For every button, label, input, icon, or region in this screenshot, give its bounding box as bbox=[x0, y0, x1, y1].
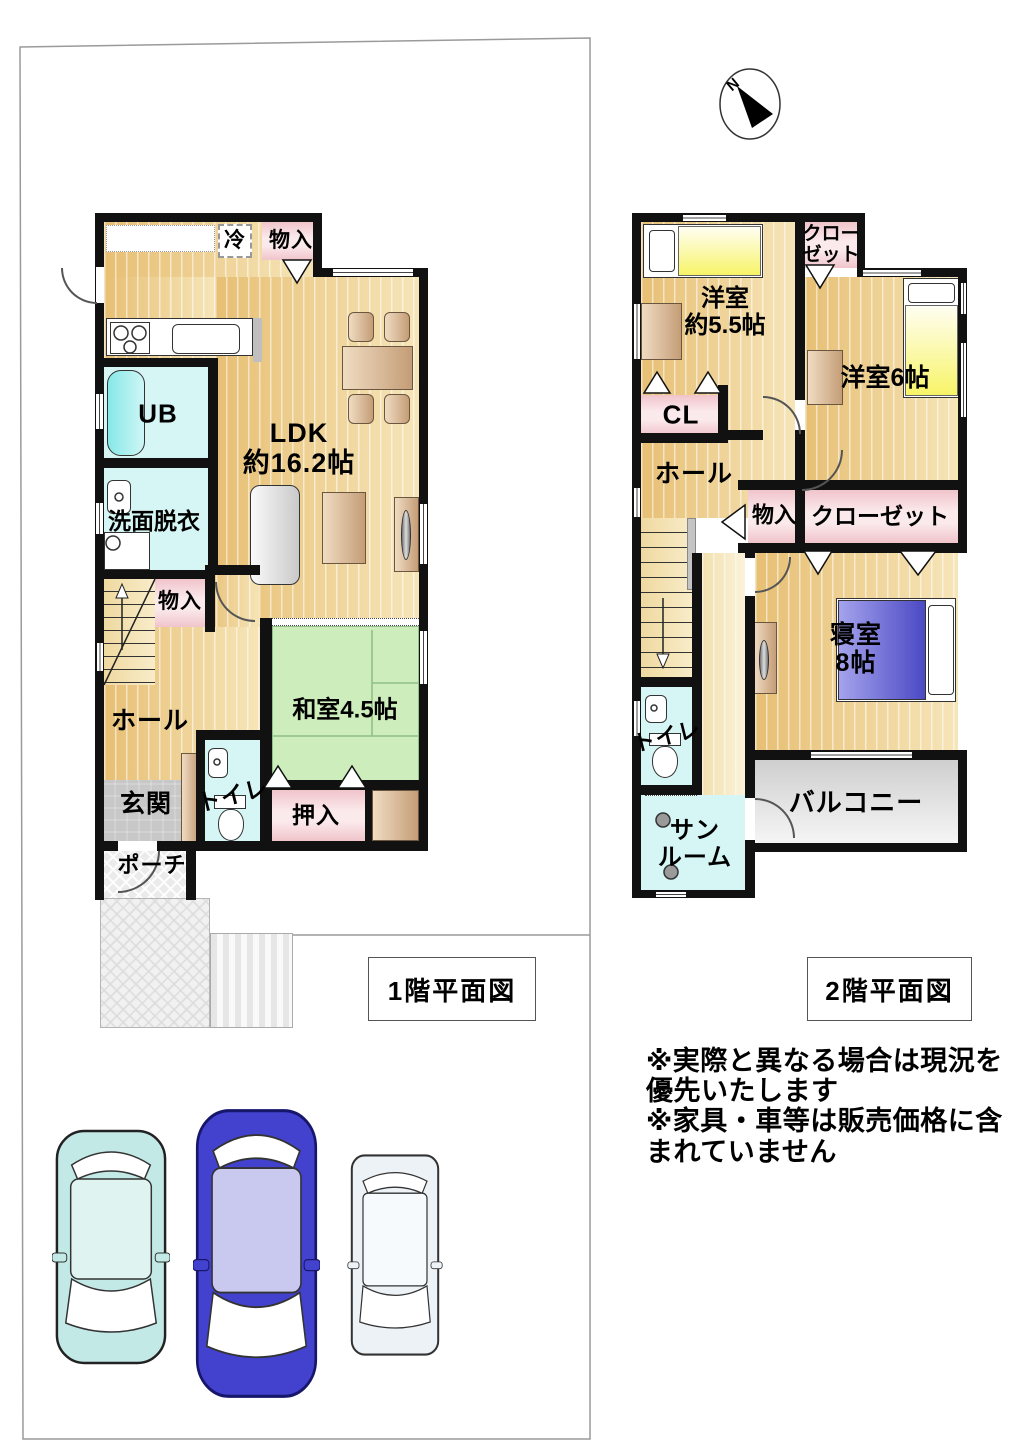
wall bbox=[208, 358, 218, 570]
wall bbox=[95, 213, 104, 900]
window bbox=[419, 630, 428, 685]
dining-chair bbox=[348, 312, 374, 342]
room-label-bedroom: 寝室 8帖 bbox=[830, 621, 882, 677]
floor2-title-box: 2階平面図 bbox=[807, 957, 972, 1021]
wall bbox=[365, 790, 372, 841]
room-label-closet-wide: クローゼット bbox=[811, 504, 949, 530]
wall bbox=[205, 565, 215, 632]
window bbox=[682, 214, 727, 222]
toilet-basin-1f bbox=[208, 748, 228, 778]
corridor-2f-floor bbox=[702, 553, 745, 795]
tv-screen bbox=[401, 510, 411, 560]
dining-chair bbox=[384, 312, 410, 342]
room-label-unit-bath: UB bbox=[138, 399, 178, 428]
window bbox=[95, 393, 104, 430]
wall bbox=[632, 890, 755, 898]
floor1-title-box: 1階平面図 bbox=[368, 957, 536, 1021]
wall bbox=[692, 553, 702, 795]
toilet-basin-2f bbox=[645, 695, 667, 723]
desk-55 bbox=[641, 303, 682, 360]
room-label-fridge: 冷 bbox=[224, 229, 246, 253]
room-label-storage-2f: 物入 bbox=[752, 504, 796, 529]
room-label-balcony: バルコニー bbox=[789, 788, 923, 817]
wall bbox=[95, 570, 215, 579]
dresser-mirror bbox=[759, 640, 769, 680]
window bbox=[960, 282, 967, 315]
wall bbox=[958, 756, 967, 852]
room-label-ldk: LDK 約16.2帖 bbox=[243, 418, 356, 478]
wall bbox=[95, 213, 322, 222]
window bbox=[810, 751, 913, 759]
wall bbox=[95, 841, 104, 900]
wall bbox=[632, 433, 728, 443]
kitchen-cabinet-dotted bbox=[106, 225, 215, 252]
door-arc bbox=[763, 396, 801, 434]
room-label-washroom: 洗面脱衣 bbox=[108, 509, 200, 535]
wall bbox=[95, 358, 218, 367]
room-label-hall-2f: ホール bbox=[655, 460, 733, 488]
door-opening bbox=[745, 798, 755, 840]
car-top-view-blue bbox=[193, 1107, 320, 1400]
compass: N bbox=[714, 64, 786, 142]
dining-table bbox=[342, 346, 413, 390]
room-label-porch: ポーチ bbox=[117, 854, 186, 879]
door-opening bbox=[96, 267, 104, 303]
room-label-closet-top: クロー ゼット bbox=[802, 224, 859, 267]
dining-chair bbox=[384, 394, 410, 424]
window bbox=[960, 342, 967, 418]
toilet-bowl-1f bbox=[218, 809, 244, 841]
tokonoma-cabinet bbox=[372, 790, 419, 841]
floor-plan-sheet: N bbox=[0, 0, 1029, 1456]
room-label-japanese-room: 和室4.5帖 bbox=[292, 698, 397, 725]
bed-blue-pillow bbox=[928, 605, 954, 695]
wall bbox=[632, 213, 865, 222]
wall bbox=[632, 785, 702, 795]
wall bbox=[738, 543, 967, 553]
stove bbox=[110, 322, 150, 354]
stairs-1f bbox=[104, 579, 155, 685]
cabinet-6 bbox=[807, 350, 843, 405]
wall bbox=[795, 430, 805, 553]
room-label-entrance: 玄関 bbox=[120, 790, 172, 818]
wall bbox=[745, 843, 967, 852]
door-arc bbox=[61, 268, 97, 304]
kitchen-counter-edge bbox=[253, 318, 262, 362]
window bbox=[419, 503, 428, 565]
wall bbox=[718, 385, 728, 440]
wall bbox=[738, 480, 967, 490]
wall bbox=[186, 841, 196, 900]
washer-pan bbox=[104, 532, 150, 570]
wall bbox=[632, 677, 701, 687]
approach-walkway bbox=[100, 898, 210, 1028]
room-label-western-room-6: 洋室6帖 bbox=[841, 364, 930, 392]
room-label-cl: CL bbox=[663, 400, 700, 429]
window bbox=[655, 891, 687, 898]
window bbox=[862, 269, 922, 277]
disclaimer-text: ※実際と異なる場合は現況を 優先いたします ※家具・車等は販売価格に含 まれてい… bbox=[646, 1046, 1029, 1167]
room-label-storage-1f-top: 物入 bbox=[269, 229, 313, 253]
room-label-sunroom: サン ルーム bbox=[658, 818, 732, 872]
room-label-oshiire: 押入 bbox=[292, 803, 340, 829]
entrance-steps bbox=[210, 933, 293, 1028]
bed-6-pillow bbox=[908, 283, 955, 303]
wall bbox=[260, 780, 428, 790]
window bbox=[95, 502, 104, 535]
kitchen-sink bbox=[172, 324, 240, 354]
window bbox=[633, 303, 641, 360]
tatami-sill bbox=[272, 618, 419, 626]
window bbox=[633, 487, 641, 518]
window bbox=[96, 642, 104, 672]
wall bbox=[186, 841, 428, 851]
wall bbox=[95, 458, 218, 468]
door-opening bbox=[745, 558, 755, 596]
coffee-table bbox=[322, 492, 366, 564]
room-label-hall-1f: ホール bbox=[111, 707, 189, 735]
room-label-storage-1f-mid: 物入 bbox=[158, 590, 202, 614]
car-top-view-white bbox=[347, 1152, 443, 1358]
door-opening bbox=[118, 841, 157, 851]
wall bbox=[260, 618, 272, 737]
bed-55-pillow bbox=[649, 230, 675, 272]
room-label-western-room-55: 洋室 約5.5帖 bbox=[684, 286, 765, 340]
car-top-view-cyan bbox=[52, 1127, 170, 1367]
window bbox=[332, 268, 414, 277]
stairs-2f bbox=[641, 518, 692, 683]
bed-55-mattress bbox=[678, 226, 761, 276]
